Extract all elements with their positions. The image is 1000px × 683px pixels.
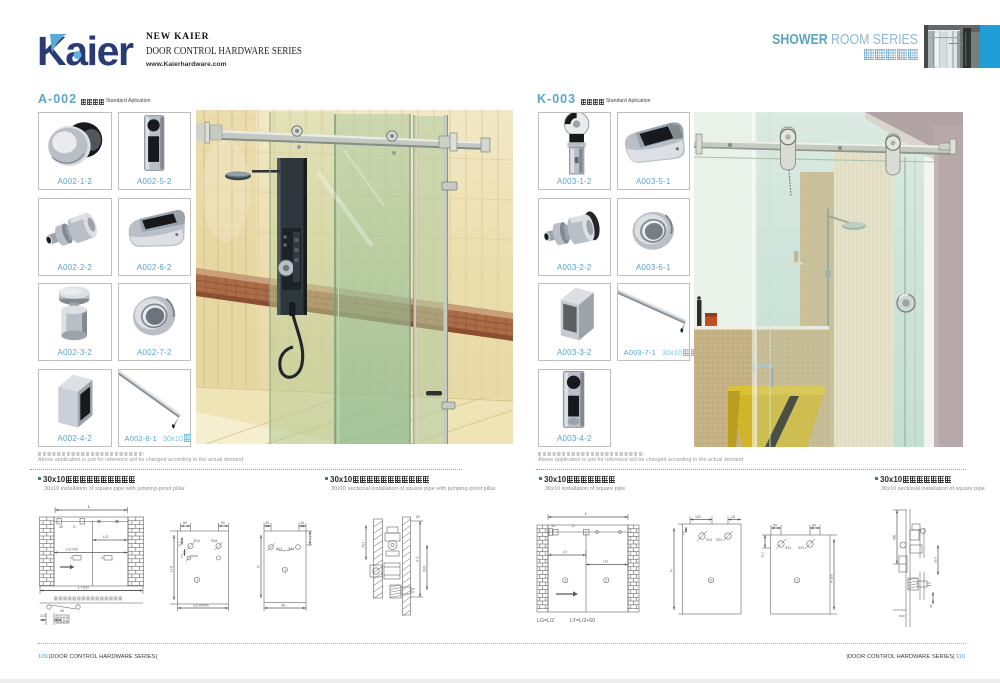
svg-text:40: 40 xyxy=(59,525,63,529)
svg-text:Φ13: Φ13 xyxy=(706,538,712,542)
svg-text:LG=L/2: LG=L/2 xyxy=(537,618,554,624)
svg-text:40: 40 xyxy=(551,524,555,528)
svg-text:H: H xyxy=(670,569,674,572)
svg-text:1: 1 xyxy=(796,579,798,583)
svg-text:76.2: 76.2 xyxy=(362,542,366,548)
svg-text:2: 2 xyxy=(710,579,712,583)
svg-text:1/2·W/mm: 1/2·W/mm xyxy=(193,604,209,608)
svg-text:26.2: 26.2 xyxy=(178,541,182,547)
svg-text:80: 80 xyxy=(183,521,187,525)
svg-text:L/2: L/2 xyxy=(103,535,108,539)
svg-text:Φ18: Φ18 xyxy=(211,539,217,543)
svg-text:H: H xyxy=(257,565,261,568)
svg-text:Φ13: Φ13 xyxy=(798,546,804,550)
svg-text:39.5: 39.5 xyxy=(761,552,765,558)
svg-text:Φ13: Φ13 xyxy=(716,538,722,542)
svg-text:15: 15 xyxy=(731,515,735,519)
svg-text:132: 132 xyxy=(695,515,701,519)
svg-text:L+100: L+100 xyxy=(78,586,89,590)
svg-text:180: 180 xyxy=(893,534,897,540)
svg-text:39.8: 39.8 xyxy=(423,566,427,572)
svg-text:D: D xyxy=(73,525,76,529)
svg-text:H-S: H-S xyxy=(170,565,174,572)
svg-text:H-100: H-100 xyxy=(830,574,834,583)
svg-text:7.5: 7.5 xyxy=(682,531,686,535)
svg-text:1: 1 xyxy=(196,578,198,582)
svg-text:LY=L/2+60: LY=L/2+60 xyxy=(570,618,595,624)
svg-text:60: 60 xyxy=(812,524,816,528)
svg-text:Φ18: Φ18 xyxy=(192,554,198,558)
svg-text:Φ19: Φ19 xyxy=(899,614,905,618)
svg-text:45: 45 xyxy=(60,609,64,613)
svg-text:65: 65 xyxy=(416,515,420,519)
svg-text:45: 45 xyxy=(281,604,285,608)
svg-text:D: D xyxy=(572,524,575,528)
svg-text:2: 2 xyxy=(605,579,607,583)
svg-text:Φ16: Φ16 xyxy=(194,539,200,543)
svg-text:H-S: H-S xyxy=(416,557,420,563)
svg-text:50: 50 xyxy=(773,524,777,528)
svg-text:Φ13: Φ13 xyxy=(785,546,791,550)
svg-text:10.5: 10.5 xyxy=(40,614,46,618)
svg-text:LY: LY xyxy=(563,550,568,554)
svg-text:39.8: 39.8 xyxy=(934,557,938,563)
svg-text:1: 1 xyxy=(284,568,286,572)
svg-text:50: 50 xyxy=(221,521,225,525)
svg-text:2: 2 xyxy=(101,556,103,560)
svg-text:L: L xyxy=(585,511,588,516)
svg-text:LG: LG xyxy=(603,560,608,564)
svg-text:L/2+60: L/2+60 xyxy=(66,548,78,552)
svg-text:7.5: 7.5 xyxy=(309,535,313,540)
svg-text:1: 1 xyxy=(564,579,566,583)
svg-text:25: 25 xyxy=(265,521,269,525)
svg-text:9.2: 9.2 xyxy=(180,553,184,558)
svg-text:15: 15 xyxy=(300,521,304,525)
svg-text:25: 25 xyxy=(929,604,933,608)
svg-text:L: L xyxy=(88,504,91,509)
svg-text:1: 1 xyxy=(70,556,72,560)
